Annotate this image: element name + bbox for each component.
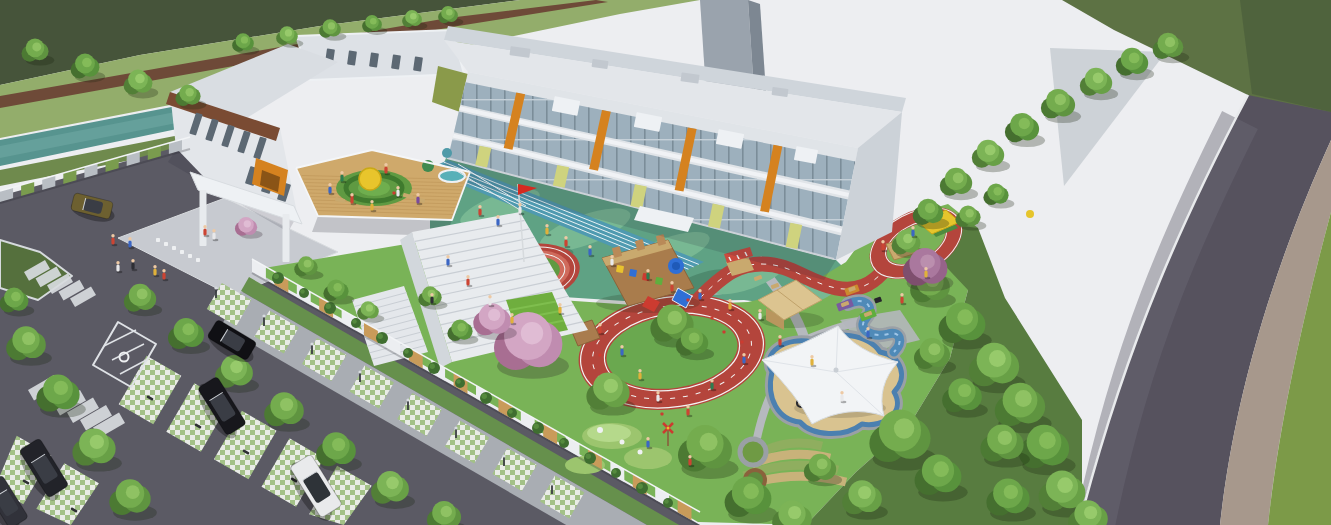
- maze-umbrella: [359, 168, 381, 190]
- play-structures-shape: [629, 269, 637, 277]
- scene-canvas: [0, 0, 1331, 525]
- terrace-pool: [439, 170, 465, 182]
- play-structures-shape: [672, 262, 680, 270]
- canopy-pole-top: [834, 368, 839, 373]
- play-zones-shape: [638, 450, 643, 455]
- deck-umbrella-teal: [442, 148, 452, 158]
- seating-ring: [740, 439, 766, 465]
- yellow-play-toy: [1026, 210, 1034, 218]
- play-structures-shape: [655, 277, 663, 285]
- play-zones-shape: [667, 427, 670, 430]
- play-zones-shape: [624, 447, 672, 469]
- castle-panels: [616, 265, 624, 273]
- play-zones-shape: [587, 424, 631, 442]
- architectural-rendering-image: [0, 0, 1331, 525]
- play-zones-shape: [620, 440, 625, 445]
- dome-toy: [597, 427, 603, 433]
